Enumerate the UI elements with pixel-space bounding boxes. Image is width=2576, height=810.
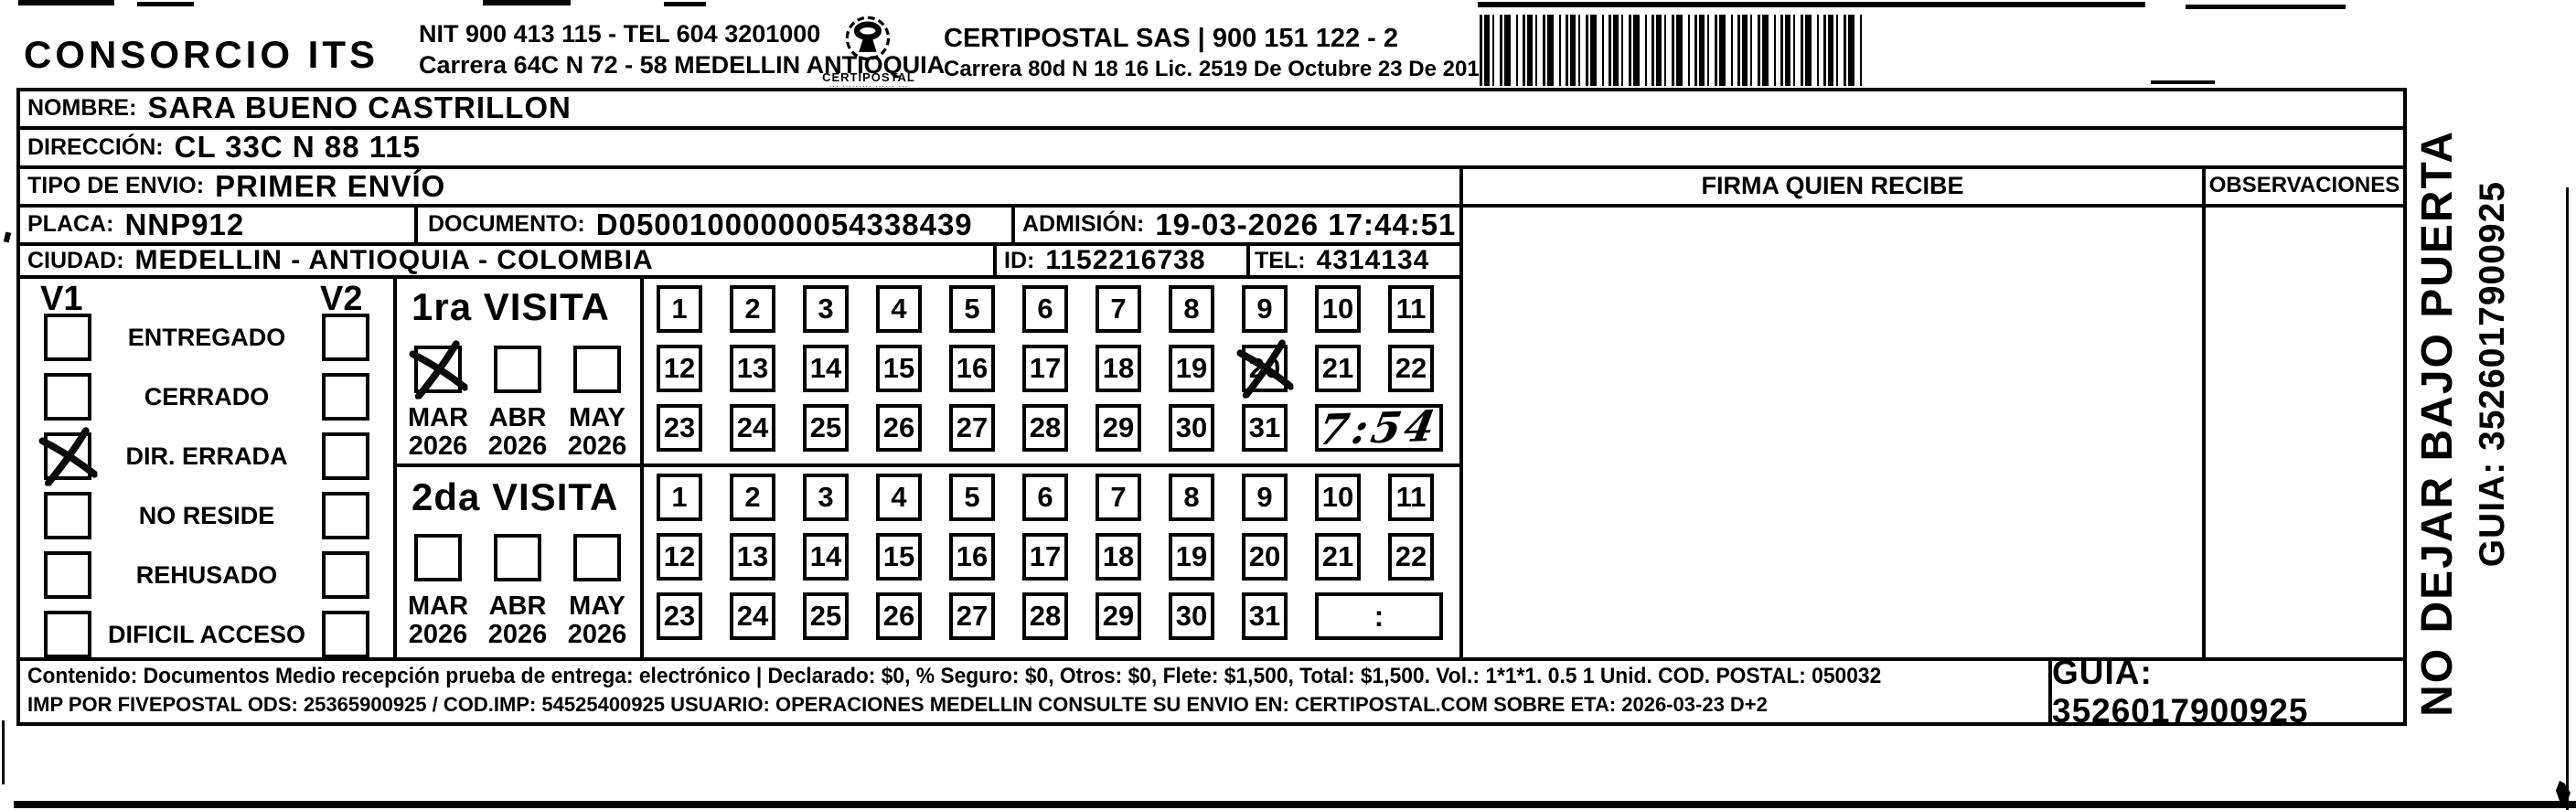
status-row: DIFICIL ACCESO xyxy=(20,613,391,655)
status-label: REHUSADO xyxy=(91,561,322,590)
status-rows: ENTREGADOCERRADODIR. ERRADANO RESIDEREHU… xyxy=(20,316,391,673)
day-row: 1213141516171819202122 xyxy=(657,345,1434,392)
scan-artifact xyxy=(4,231,11,242)
section-divider xyxy=(393,275,397,661)
x-mark-icon xyxy=(1235,338,1294,399)
day-cell: 14 xyxy=(803,533,849,581)
day-cell: 22 xyxy=(1388,533,1434,581)
month-checkbox xyxy=(414,534,462,581)
day-cell: 11 xyxy=(1388,474,1434,521)
day-row: 1213141516171819202122 xyxy=(657,533,1434,581)
entity-block: CERTIPOSTAL SAS | 900 151 122 - 2 Carrer… xyxy=(944,22,1491,84)
v2-checkbox xyxy=(322,432,369,480)
direccion-value: CL 33C N 88 115 xyxy=(175,130,421,165)
day-cell: 26 xyxy=(876,592,922,640)
day-cell: 22 xyxy=(1388,345,1434,392)
visit-months: MAR2026ABR2026MAY2026 xyxy=(401,534,635,649)
documento-label: DOCUMENTO: xyxy=(428,211,585,238)
v2-checkbox xyxy=(322,492,369,539)
cell-divider xyxy=(993,242,997,279)
scan-edge-right xyxy=(2566,187,2569,810)
day-cell: 27 xyxy=(949,592,995,640)
status-row: REHUSADO xyxy=(20,554,391,596)
tipo-envio-label: TIPO DE ENVIO: xyxy=(27,173,204,199)
day-cell: 25 xyxy=(803,592,849,640)
v1-checkbox xyxy=(44,314,91,361)
nombre-value: SARA BUENO CASTRILLON xyxy=(147,91,571,125)
scan-artifact xyxy=(483,0,571,5)
day-cell: 25 xyxy=(803,404,849,452)
day-cell: 4 xyxy=(876,285,922,333)
day-cell: 9 xyxy=(1242,285,1288,333)
v1-checkbox xyxy=(44,432,91,480)
month-year: 2026 xyxy=(568,621,627,649)
day-cell: 2 xyxy=(730,474,775,521)
day-row: 232425262728293031: xyxy=(657,592,1443,640)
day-cell: 21 xyxy=(1315,533,1361,581)
day-cell: 27 xyxy=(949,404,995,452)
day-row: 1234567891011 xyxy=(657,285,1434,333)
day-cell: 28 xyxy=(1022,404,1068,452)
status-row: NO RESIDE xyxy=(20,495,391,537)
scan-artifact xyxy=(664,2,706,6)
v2-checkbox xyxy=(322,611,369,658)
month-option: ABR2026 xyxy=(480,534,555,649)
tipo-envio-value: PRIMER ENVÍO xyxy=(215,169,445,204)
guia-number: GUIA: 3526017900925 xyxy=(2052,660,2405,724)
day-cell: 21 xyxy=(1315,345,1361,392)
month-abbr: MAY xyxy=(569,404,625,432)
month-abbr: MAR xyxy=(408,592,468,621)
company-name: CONSORCIO ITS xyxy=(24,33,379,77)
scan-artifact xyxy=(2151,80,2215,84)
v2-checkbox xyxy=(322,373,369,421)
day-cell: 12 xyxy=(657,533,702,581)
day-cell: 31 xyxy=(1242,592,1288,640)
scan-artifact xyxy=(2,720,5,784)
day-cell: 14 xyxy=(803,345,849,392)
day-cell: 30 xyxy=(1169,404,1214,452)
month-year: 2026 xyxy=(488,621,548,649)
visit-divider xyxy=(393,464,1459,467)
status-row: CERRADO xyxy=(20,376,391,418)
month-option: MAY2026 xyxy=(560,534,635,649)
day-cell: 18 xyxy=(1096,533,1141,581)
day-cell: 10 xyxy=(1315,285,1361,333)
v1-checkbox xyxy=(44,551,91,599)
entity-name-nit: CERTIPOSTAL SAS | 900 151 122 - 2 xyxy=(944,22,1491,55)
day-cell: 6 xyxy=(1022,285,1068,333)
status-label: ENTREGADO xyxy=(91,324,322,352)
day-cell: 20 xyxy=(1242,533,1288,581)
v1-checkbox xyxy=(44,373,91,421)
direccion-label: DIRECCIÓN: xyxy=(27,134,164,161)
section-divider xyxy=(640,275,644,661)
day-cell: 8 xyxy=(1169,474,1214,521)
documento-value: D05001000000054338439 xyxy=(596,208,973,242)
day-cell: 2 xyxy=(730,285,775,333)
time-value: 7:54 xyxy=(1315,401,1442,454)
v1-checkbox xyxy=(44,611,91,658)
id-label: ID: xyxy=(1004,248,1034,274)
cell-divider xyxy=(1246,242,1250,279)
day-cell: 11 xyxy=(1388,285,1434,333)
day-cell: 31 xyxy=(1242,404,1288,452)
ciudad-value: MEDELLIN - ANTIOQUIA - COLOMBIA xyxy=(135,245,654,276)
day-cell: 3 xyxy=(803,285,849,333)
day-cell: 7 xyxy=(1096,474,1141,521)
day-cell: 29 xyxy=(1096,404,1141,452)
day-cell: 18 xyxy=(1096,345,1141,392)
placa-value: NNP912 xyxy=(124,208,244,242)
month-year: 2026 xyxy=(409,621,468,649)
status-label: DIFICIL ACCESO xyxy=(91,621,322,649)
day-cell: 5 xyxy=(949,474,995,521)
v2-checkbox xyxy=(322,314,369,361)
day-cell: 23 xyxy=(657,592,702,640)
status-row: DIR. ERRADA xyxy=(20,435,391,477)
scan-artifact xyxy=(1478,2,2145,7)
scan-edge-bottom xyxy=(14,801,2576,808)
month-abbr: ABR xyxy=(489,404,547,432)
v1-checkbox xyxy=(44,492,91,539)
day-cell: 16 xyxy=(949,345,995,392)
placa-label: PLACA: xyxy=(27,211,113,238)
day-cell: 24 xyxy=(730,592,775,640)
month-option: MAY2026 xyxy=(560,346,635,461)
observaciones-column-header: OBSERVACIONES xyxy=(2206,167,2403,204)
day-cell: 5 xyxy=(949,285,995,333)
day-cell: 15 xyxy=(876,533,922,581)
month-checkbox xyxy=(494,534,541,581)
day-cell: 19 xyxy=(1169,345,1214,392)
tel-value: 4314134 xyxy=(1317,245,1430,276)
admision-value: 19-03-2026 17:44:51 xyxy=(1155,208,1456,242)
month-checkbox xyxy=(414,346,462,393)
x-mark-icon xyxy=(408,339,468,400)
tel-label: TEL: xyxy=(1255,248,1306,274)
month-checkbox xyxy=(573,534,621,581)
status-label: CERRADO xyxy=(91,383,322,411)
shipping-label-scan: CONSORCIO ITS NIT 900 413 115 - TEL 604 … xyxy=(0,0,2576,810)
day-cell: 10 xyxy=(1315,474,1361,521)
day-cell: 23 xyxy=(657,404,702,452)
month-checkbox xyxy=(494,346,541,393)
day-cell: 16 xyxy=(949,533,995,581)
month-abbr: MAR xyxy=(408,404,468,432)
day-cell: 6 xyxy=(1022,474,1068,521)
cell-divider xyxy=(1011,204,1015,246)
status-label: NO RESIDE xyxy=(91,502,322,530)
month-year: 2026 xyxy=(409,432,468,461)
entity-license: Carrera 80d N 18 16 Lic. 2519 De Octubre… xyxy=(944,55,1491,84)
day-cell: 1 xyxy=(657,474,702,521)
day-cell: 20 xyxy=(1242,345,1288,392)
time-value: : xyxy=(1374,600,1384,634)
postal-logo-icon xyxy=(839,15,899,66)
form-border xyxy=(2403,88,2407,726)
day-cell: 17 xyxy=(1022,533,1068,581)
time-box: 7:54 xyxy=(1315,404,1443,452)
status-label: DIR. ERRADA xyxy=(91,442,322,471)
day-cell: 15 xyxy=(876,345,922,392)
day-cell: 12 xyxy=(657,345,702,392)
day-cell: 13 xyxy=(730,533,775,581)
side-note-no-dejar: NO DEJAR BAJO PUERTA xyxy=(2412,130,2463,717)
day-cell: 26 xyxy=(876,404,922,452)
day-cell: 9 xyxy=(1242,474,1288,521)
day-cell: 13 xyxy=(730,345,775,392)
month-checkbox xyxy=(573,346,621,393)
nombre-label: NOMBRE: xyxy=(27,95,136,122)
month-option: MAR2026 xyxy=(401,534,476,649)
status-row: ENTREGADO xyxy=(20,316,391,358)
day-cell: 4 xyxy=(876,474,922,521)
day-cell: 8 xyxy=(1169,285,1214,333)
firma-cell xyxy=(1463,208,2202,657)
ciudad-label: CIUDAD: xyxy=(27,248,124,274)
month-year: 2026 xyxy=(568,432,627,461)
scan-artifact xyxy=(2186,5,2346,9)
admision-label: ADMISIÓN: xyxy=(1022,211,1144,238)
visit2-title: 2da VISITA xyxy=(412,475,618,519)
month-abbr: MAY xyxy=(569,592,625,621)
day-cell: 30 xyxy=(1169,592,1214,640)
v2-checkbox xyxy=(322,551,369,599)
imp-line: IMP POR FIVEPOSTAL ODS: 25365900925 / CO… xyxy=(27,693,1768,717)
day-cell: 19 xyxy=(1169,533,1214,581)
firma-column-header: FIRMA QUIEN RECIBE xyxy=(1463,167,2202,204)
day-cell: 17 xyxy=(1022,345,1068,392)
day-cell: 1 xyxy=(657,285,702,333)
x-mark-icon xyxy=(37,426,98,486)
day-row: 1234567891011 xyxy=(657,474,1434,521)
scan-artifact xyxy=(18,0,114,5)
month-abbr: ABR xyxy=(489,592,547,621)
visit-months: MAR2026ABR2026MAY2026 xyxy=(401,346,635,461)
side-note-guia: GUIA: 3526017900925 xyxy=(2473,181,2513,567)
day-cell: 28 xyxy=(1022,592,1068,640)
visit1-title: 1ra VISITA xyxy=(412,285,610,329)
month-option: ABR2026 xyxy=(480,346,555,461)
time-box: : xyxy=(1315,592,1443,640)
day-cell: 29 xyxy=(1096,592,1141,640)
id-value: 1152216738 xyxy=(1045,245,1205,276)
observaciones-cell xyxy=(2206,208,2403,657)
scan-artifact xyxy=(137,2,194,6)
day-row: 2324252627282930317:54 xyxy=(657,404,1443,452)
content-declaration-line: Contenido: Documentos Medio recepción pr… xyxy=(27,664,1979,689)
day-cell: 3 xyxy=(803,474,849,521)
tracking-barcode xyxy=(1480,15,1865,86)
day-cell: 7 xyxy=(1096,285,1141,333)
month-option: MAR2026 xyxy=(401,346,476,461)
month-year: 2026 xyxy=(488,432,548,461)
cell-divider xyxy=(414,204,418,246)
content-declaration-text: Contenido: Documentos Medio recepción pr… xyxy=(27,664,1881,689)
certipostal-logo: CERTIPOSTAL ··· ········· ······ ··· xyxy=(816,15,922,91)
day-cell: 24 xyxy=(730,404,775,452)
